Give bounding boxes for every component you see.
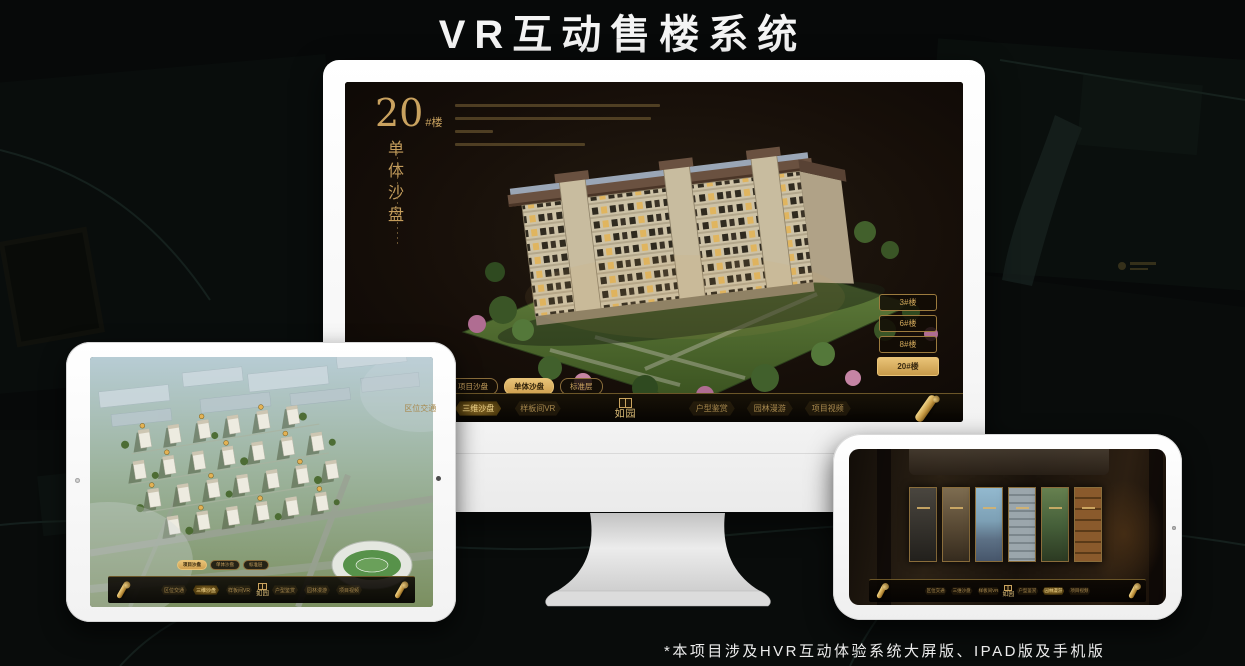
tablet-screen: 项目沙盘 单体沙盘 标准层 区位交通 三维沙盘 样板间VR 如园 户型鉴赏 园林… bbox=[90, 357, 433, 607]
scroll-handle-icon[interactable] bbox=[394, 581, 407, 598]
phone-screen: 区位交通 三维沙盘 样板间VR 如园 户型鉴赏 园林漫游 项目视频 bbox=[849, 449, 1166, 605]
nav-item-floorplans[interactable]: 户型鉴赏 bbox=[696, 403, 728, 414]
nav-item-project-video[interactable]: 项目视频 bbox=[339, 587, 359, 594]
nav-item-3d-sandbox[interactable]: 三维沙盘 bbox=[462, 403, 494, 414]
brand-logo: 如园 bbox=[1002, 585, 1014, 598]
nav-item-location[interactable]: 区位交通 bbox=[404, 403, 436, 414]
nav-item-location[interactable]: 区位交通 bbox=[927, 588, 945, 594]
tablet-subtab-single-sandbox[interactable]: 单体沙盘 bbox=[210, 560, 240, 570]
thumbnail-facade[interactable] bbox=[1008, 487, 1036, 562]
nav-item-floorplans[interactable]: 户型鉴赏 bbox=[1018, 588, 1036, 594]
phone-device: 区位交通 三维沙盘 样板间VR 如园 户型鉴赏 园林漫游 项目视频 bbox=[833, 434, 1182, 620]
scroll-handle-icon[interactable] bbox=[1128, 583, 1139, 598]
thumbnail-warm-interior[interactable] bbox=[1074, 487, 1102, 562]
interior-ceiling bbox=[909, 449, 1109, 475]
building-selector: 3#楼 6#楼 8#楼 20#楼 bbox=[876, 294, 940, 376]
seal-icon bbox=[1004, 585, 1012, 591]
unit-heading: 20 #楼 单体沙盘 bbox=[375, 94, 442, 228]
scroll-handle-icon[interactable] bbox=[876, 583, 887, 598]
nav-item-garden-roam[interactable]: 园林漫游 bbox=[754, 403, 786, 414]
footnote: *本项目涉及HVR互动体验系统大屏版、IPAD版及手机版 bbox=[664, 640, 1105, 661]
thumbnail-sky-tower[interactable] bbox=[975, 487, 1003, 562]
page-title: VR互动售楼系统 bbox=[0, 2, 1245, 60]
scroll-handle-icon[interactable] bbox=[914, 394, 939, 422]
nav-item-garden-roam[interactable]: 园林漫游 bbox=[1044, 588, 1062, 594]
description-paragraph bbox=[455, 104, 665, 156]
scene-thumbnails bbox=[909, 487, 1102, 562]
nav-item-showroom-vr[interactable]: 样板间VR bbox=[228, 587, 250, 594]
seal-icon bbox=[619, 398, 632, 408]
monitor-stand bbox=[540, 505, 780, 615]
nav-item-garden-roam[interactable]: 园林漫游 bbox=[307, 587, 327, 594]
thumbnail-sketch-interior[interactable] bbox=[909, 487, 937, 562]
nav-item-showroom-vr[interactable]: 样板间VR bbox=[979, 588, 999, 594]
vertical-caption-decoration bbox=[397, 152, 398, 244]
phone-nav-bar: 区位交通 三维沙盘 样板间VR 如园 户型鉴赏 园林漫游 项目视频 bbox=[869, 579, 1146, 602]
tablet-device: 项目沙盘 单体沙盘 标准层 区位交通 三维沙盘 样板间VR 如园 户型鉴赏 园林… bbox=[66, 342, 456, 622]
nav-item-floorplans[interactable]: 户型鉴赏 bbox=[275, 587, 295, 594]
tablet-subtab-project-sandbox[interactable]: 项目沙盘 bbox=[177, 560, 207, 570]
building-button-8[interactable]: 8#楼 bbox=[879, 336, 937, 353]
tablet-sub-tabs: 项目沙盘 单体沙盘 标准层 bbox=[177, 560, 269, 570]
building-button-20-selected[interactable]: 20#楼 bbox=[877, 357, 939, 376]
unit-number: 20 bbox=[375, 94, 423, 132]
nav-item-project-video[interactable]: 项目视频 bbox=[812, 403, 844, 414]
stage: VR互动售楼系统 bbox=[0, 0, 1245, 666]
building-button-3[interactable]: 3#楼 bbox=[879, 294, 937, 311]
brand-logo: 如园 bbox=[256, 583, 269, 598]
nav-item-3d-sandbox[interactable]: 三维沙盘 bbox=[953, 588, 971, 594]
thumbnail-courtyard[interactable] bbox=[1041, 487, 1069, 562]
tablet-subtab-standard-floor[interactable]: 标准层 bbox=[243, 560, 269, 570]
tablet-nav-bar: 区位交通 三维沙盘 样板间VR 如园 户型鉴赏 园林漫游 项目视频 bbox=[108, 576, 415, 603]
nav-item-location[interactable]: 区位交通 bbox=[164, 587, 184, 594]
mode-title-vertical: 单体沙盘 bbox=[381, 140, 405, 228]
seal-icon bbox=[258, 583, 267, 590]
tablet-camera-icon bbox=[75, 478, 80, 483]
unit-number-suffix: #楼 bbox=[425, 114, 442, 130]
brand-logo: 如园 bbox=[615, 398, 637, 420]
tablet-home-button[interactable] bbox=[436, 476, 441, 481]
thumbnail-wood-terrace[interactable] bbox=[942, 487, 970, 562]
nav-item-showroom-vr[interactable]: 样板间VR bbox=[520, 403, 555, 414]
phone-camera-icon bbox=[1172, 526, 1176, 530]
building-button-6[interactable]: 6#楼 bbox=[879, 315, 937, 332]
nav-item-project-video[interactable]: 项目视频 bbox=[1070, 588, 1088, 594]
nav-item-3d-sandbox[interactable]: 三维沙盘 bbox=[196, 587, 216, 594]
scroll-handle-icon[interactable] bbox=[116, 581, 129, 598]
